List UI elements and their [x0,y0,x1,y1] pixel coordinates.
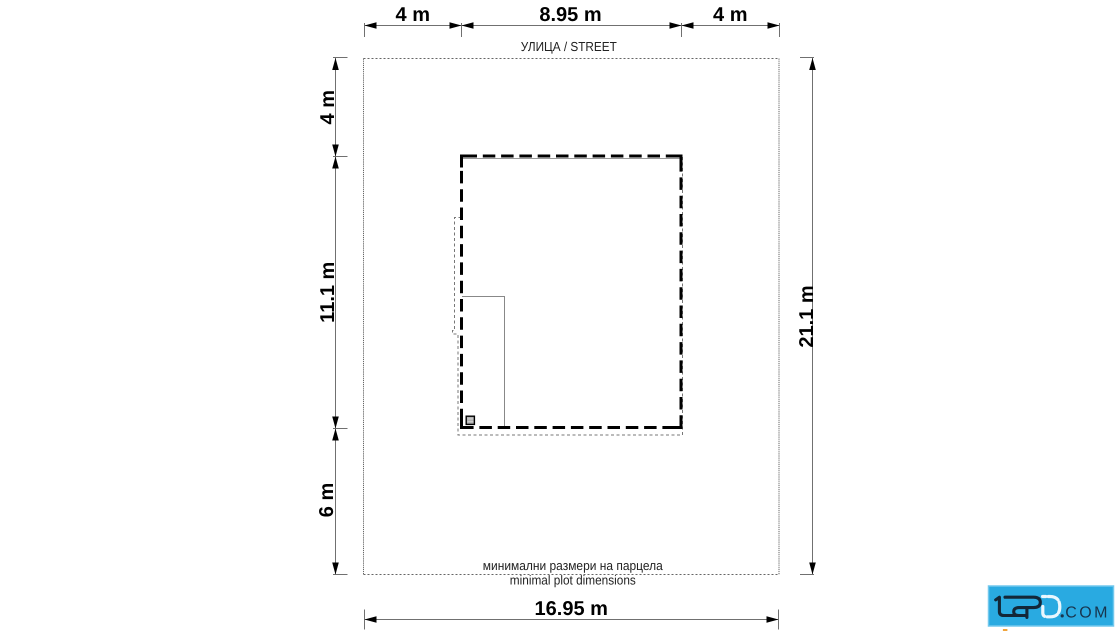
svg-text:4 m: 4 m [396,4,430,26]
svg-text:minimal plot dimensions: minimal plot dimensions [510,573,636,588]
svg-text:4 m: 4 m [713,4,747,26]
svg-text:21.1 m: 21.1 m [796,285,818,347]
svg-text:16.95 m: 16.95 m [535,598,608,620]
svg-text:6 m: 6 m [316,483,338,517]
svg-text:COM: COM [1065,604,1110,621]
svg-text:4 m: 4 m [317,90,339,124]
svg-text:8.95 m: 8.95 m [539,4,601,26]
svg-text:УЛИЦА / STREET: УЛИЦА / STREET [521,39,617,54]
svg-text:минимални размери на парцела: минимални размери на парцела [483,558,664,573]
svg-text:11.1 m: 11.1 m [317,262,339,323]
